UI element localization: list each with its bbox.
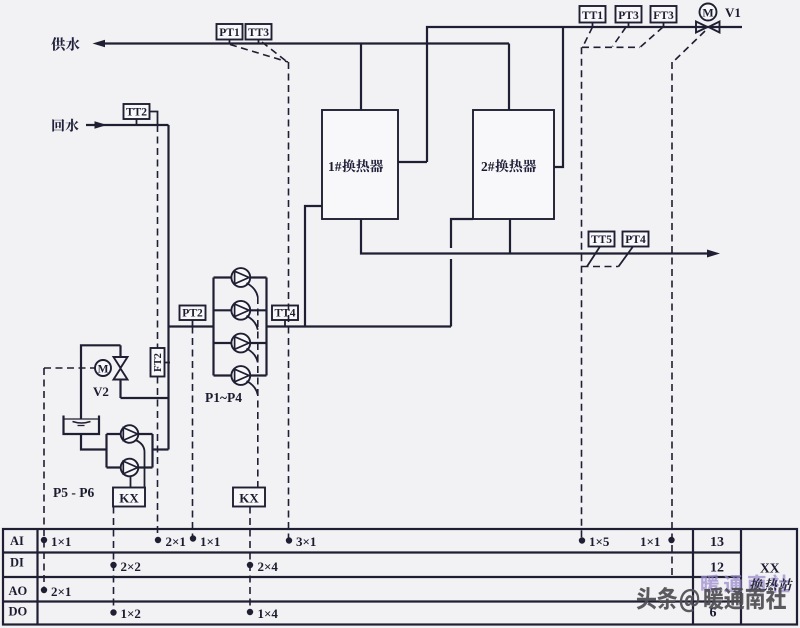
svg-text:TT2: TT2 bbox=[126, 107, 147, 119]
svg-text:P1~P4: P1~P4 bbox=[205, 390, 242, 405]
svg-text:DO: DO bbox=[9, 605, 28, 619]
svg-text:AO: AO bbox=[9, 584, 28, 598]
svg-text:13: 13 bbox=[710, 535, 724, 550]
svg-text:TT3: TT3 bbox=[248, 27, 269, 39]
svg-text:1×2: 1×2 bbox=[121, 606, 141, 621]
svg-text:12: 12 bbox=[710, 561, 724, 576]
svg-text:KX: KX bbox=[119, 491, 139, 506]
svg-text:AI: AI bbox=[10, 534, 24, 548]
svg-text:2×1: 2×1 bbox=[166, 534, 186, 549]
svg-text:2×1: 2×1 bbox=[51, 584, 71, 599]
svg-text:3×1: 3×1 bbox=[296, 534, 316, 549]
svg-text:2×4: 2×4 bbox=[258, 559, 279, 574]
svg-text:1×1: 1×1 bbox=[640, 534, 660, 549]
svg-text:M: M bbox=[702, 6, 713, 20]
svg-text:1×4: 1×4 bbox=[258, 606, 279, 621]
svg-text:M: M bbox=[98, 364, 109, 376]
svg-text:TT5: TT5 bbox=[591, 234, 612, 246]
svg-text:2×2: 2×2 bbox=[121, 559, 141, 574]
svg-text:TT4: TT4 bbox=[274, 308, 295, 320]
svg-text:PT2: PT2 bbox=[182, 308, 203, 320]
svg-text:P5 - P6: P5 - P6 bbox=[53, 485, 94, 500]
svg-text:1×1: 1×1 bbox=[200, 534, 220, 549]
svg-text:XX: XX bbox=[760, 561, 780, 576]
svg-text:TT1: TT1 bbox=[582, 10, 603, 22]
svg-text:PT1: PT1 bbox=[219, 27, 240, 39]
svg-text:V2: V2 bbox=[93, 384, 109, 399]
svg-text:V1: V1 bbox=[725, 5, 741, 20]
svg-text:1×1: 1×1 bbox=[51, 534, 71, 549]
svg-text:1#: 1# bbox=[328, 159, 342, 174]
svg-text:1×5: 1×5 bbox=[589, 534, 610, 549]
svg-text:FT3: FT3 bbox=[653, 10, 674, 22]
svg-text:DI: DI bbox=[10, 556, 24, 570]
svg-text:PT3: PT3 bbox=[618, 10, 639, 22]
svg-text:PT4: PT4 bbox=[625, 234, 646, 246]
svg-text:2#: 2# bbox=[481, 159, 495, 174]
svg-text:FT2: FT2 bbox=[153, 353, 164, 372]
svg-text:KX: KX bbox=[239, 491, 259, 506]
